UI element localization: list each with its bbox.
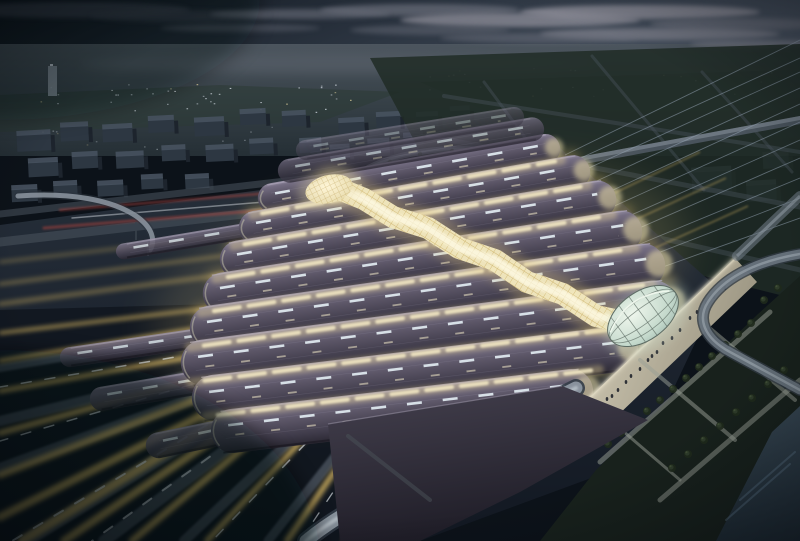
vignette <box>0 0 800 541</box>
station-night-rendering <box>0 0 800 541</box>
rendering-stage <box>0 0 800 541</box>
